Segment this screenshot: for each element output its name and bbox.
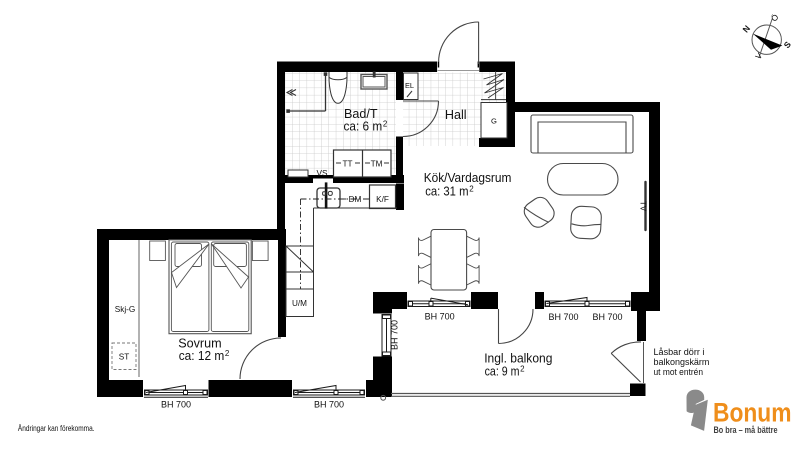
- svg-text:Bonum: Bonum: [713, 398, 792, 428]
- svg-text:VS: VS: [317, 169, 328, 178]
- svg-text:Ingl. balkong: Ingl. balkong: [484, 352, 552, 366]
- svg-text:ST: ST: [119, 353, 129, 362]
- svg-text:ca: 31 m: ca: 31 m: [425, 185, 468, 199]
- svg-text:ut mot entrén: ut mot entrén: [654, 367, 704, 378]
- svg-text:TV: TV: [639, 201, 648, 212]
- svg-text:ca: 6 m: ca: 6 m: [344, 119, 383, 133]
- svg-text:TT: TT: [342, 160, 352, 169]
- svg-text:Skj-G: Skj-G: [115, 305, 135, 314]
- svg-text:ca: 9 m: ca: 9 m: [485, 365, 520, 379]
- svg-text:2: 2: [383, 119, 388, 128]
- svg-text:U/M: U/M: [292, 299, 307, 308]
- svg-text:Hall: Hall: [445, 108, 467, 122]
- svg-text:BH 700: BH 700: [548, 312, 578, 322]
- svg-text:ca: 12 m: ca: 12 m: [179, 349, 225, 363]
- svg-text:Ändringar kan förekomma.: Ändringar kan förekomma.: [18, 423, 95, 433]
- svg-text:EL: EL: [405, 81, 414, 90]
- svg-text:2: 2: [520, 365, 525, 374]
- svg-text:G: G: [491, 117, 497, 126]
- svg-text:BH 700: BH 700: [389, 320, 399, 350]
- svg-text:BH 700: BH 700: [161, 400, 191, 410]
- svg-text:2: 2: [469, 185, 474, 194]
- svg-text:DM: DM: [349, 195, 362, 204]
- svg-text:BH 700: BH 700: [425, 312, 455, 322]
- svg-text:BH 700: BH 700: [592, 312, 622, 322]
- svg-text:TM: TM: [371, 160, 383, 169]
- svg-text:2: 2: [225, 349, 230, 358]
- svg-text:Kök/Vardagsrum: Kök/Vardagsrum: [424, 171, 512, 185]
- svg-text:Bo bra – må bättre: Bo bra – må bättre: [714, 425, 778, 436]
- svg-text:BH 700: BH 700: [314, 400, 344, 410]
- svg-text:K/F: K/F: [376, 195, 389, 204]
